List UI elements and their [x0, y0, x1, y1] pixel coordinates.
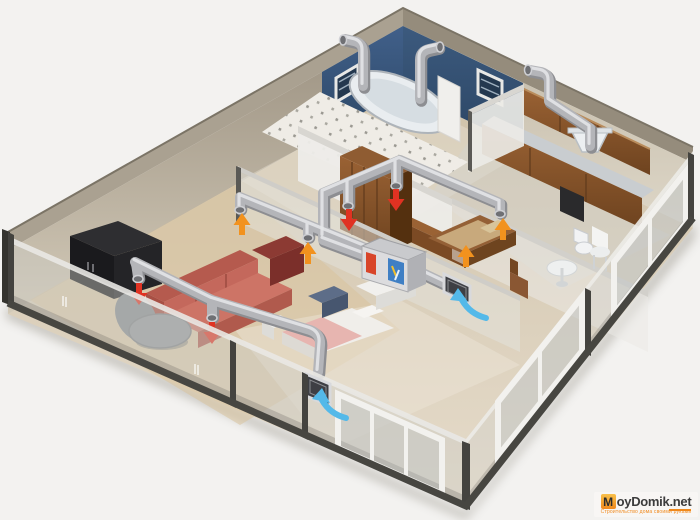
- apartment-ventilation-illustration: [0, 0, 700, 520]
- duct-opening: [343, 203, 353, 210]
- watermark-initial: M: [603, 496, 613, 508]
- illustration-canvas: M oyDomik.net Строительство дома своими …: [0, 0, 700, 520]
- duct-opening: [437, 42, 444, 52]
- watermark-tagline: Строительство дома своими руками: [597, 510, 695, 515]
- watermark-name: oyDomik.net: [617, 495, 692, 508]
- unit-label-red: [366, 252, 376, 275]
- duct-opening: [495, 211, 505, 218]
- duct-opening: [525, 65, 532, 75]
- watermark-logo: M oyDomik.net Строительство дома своими …: [594, 492, 698, 517]
- duct-opening: [340, 35, 347, 45]
- duct-opening: [303, 235, 313, 242]
- duct-opening: [207, 315, 217, 322]
- duct-opening: [391, 183, 401, 190]
- watermark-m-badge: M: [601, 494, 616, 509]
- duct-opening: [235, 207, 245, 214]
- wc-partition: [438, 76, 460, 142]
- duct-opening: [133, 276, 143, 283]
